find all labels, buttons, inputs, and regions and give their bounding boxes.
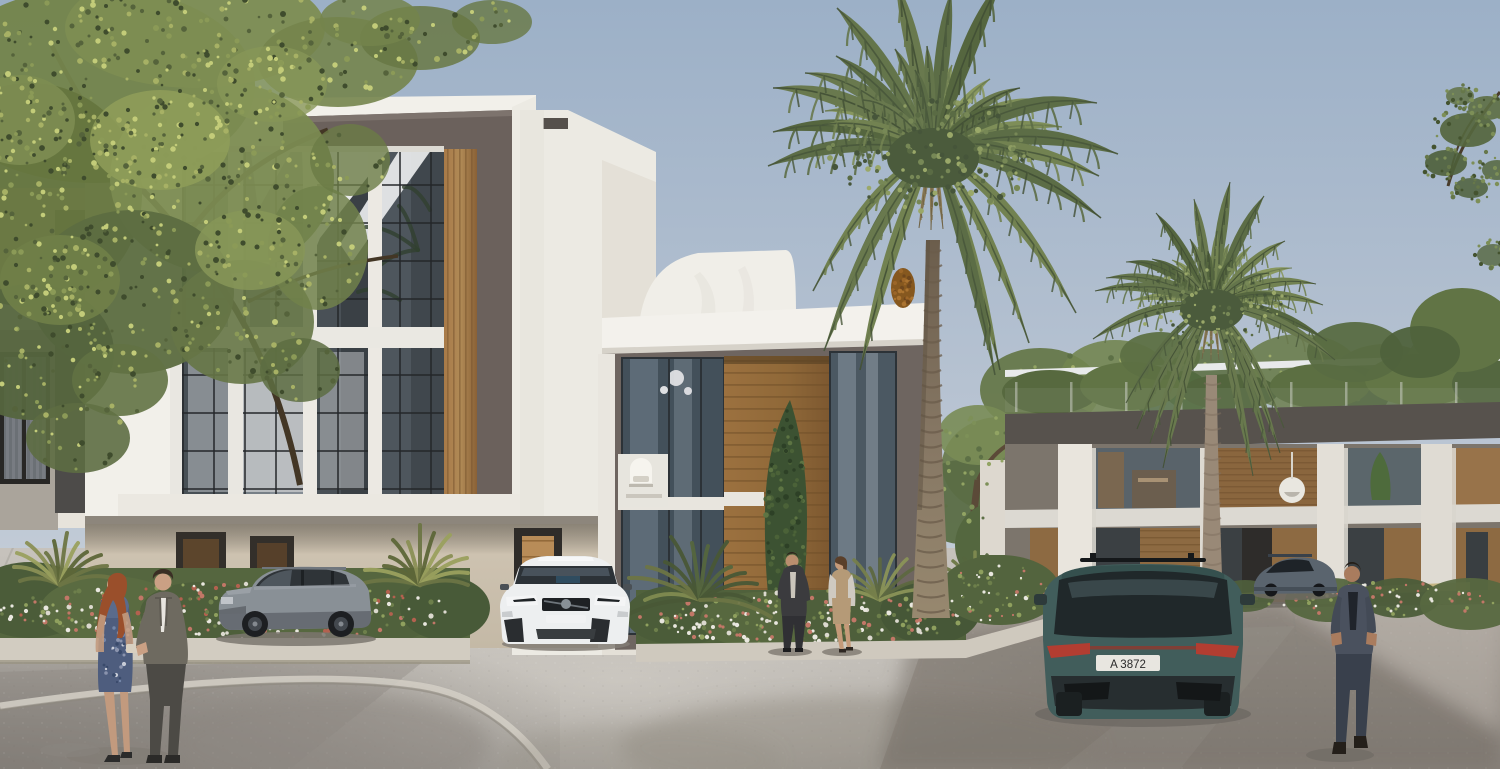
svg-text:A 3872: A 3872 <box>1110 659 1146 671</box>
